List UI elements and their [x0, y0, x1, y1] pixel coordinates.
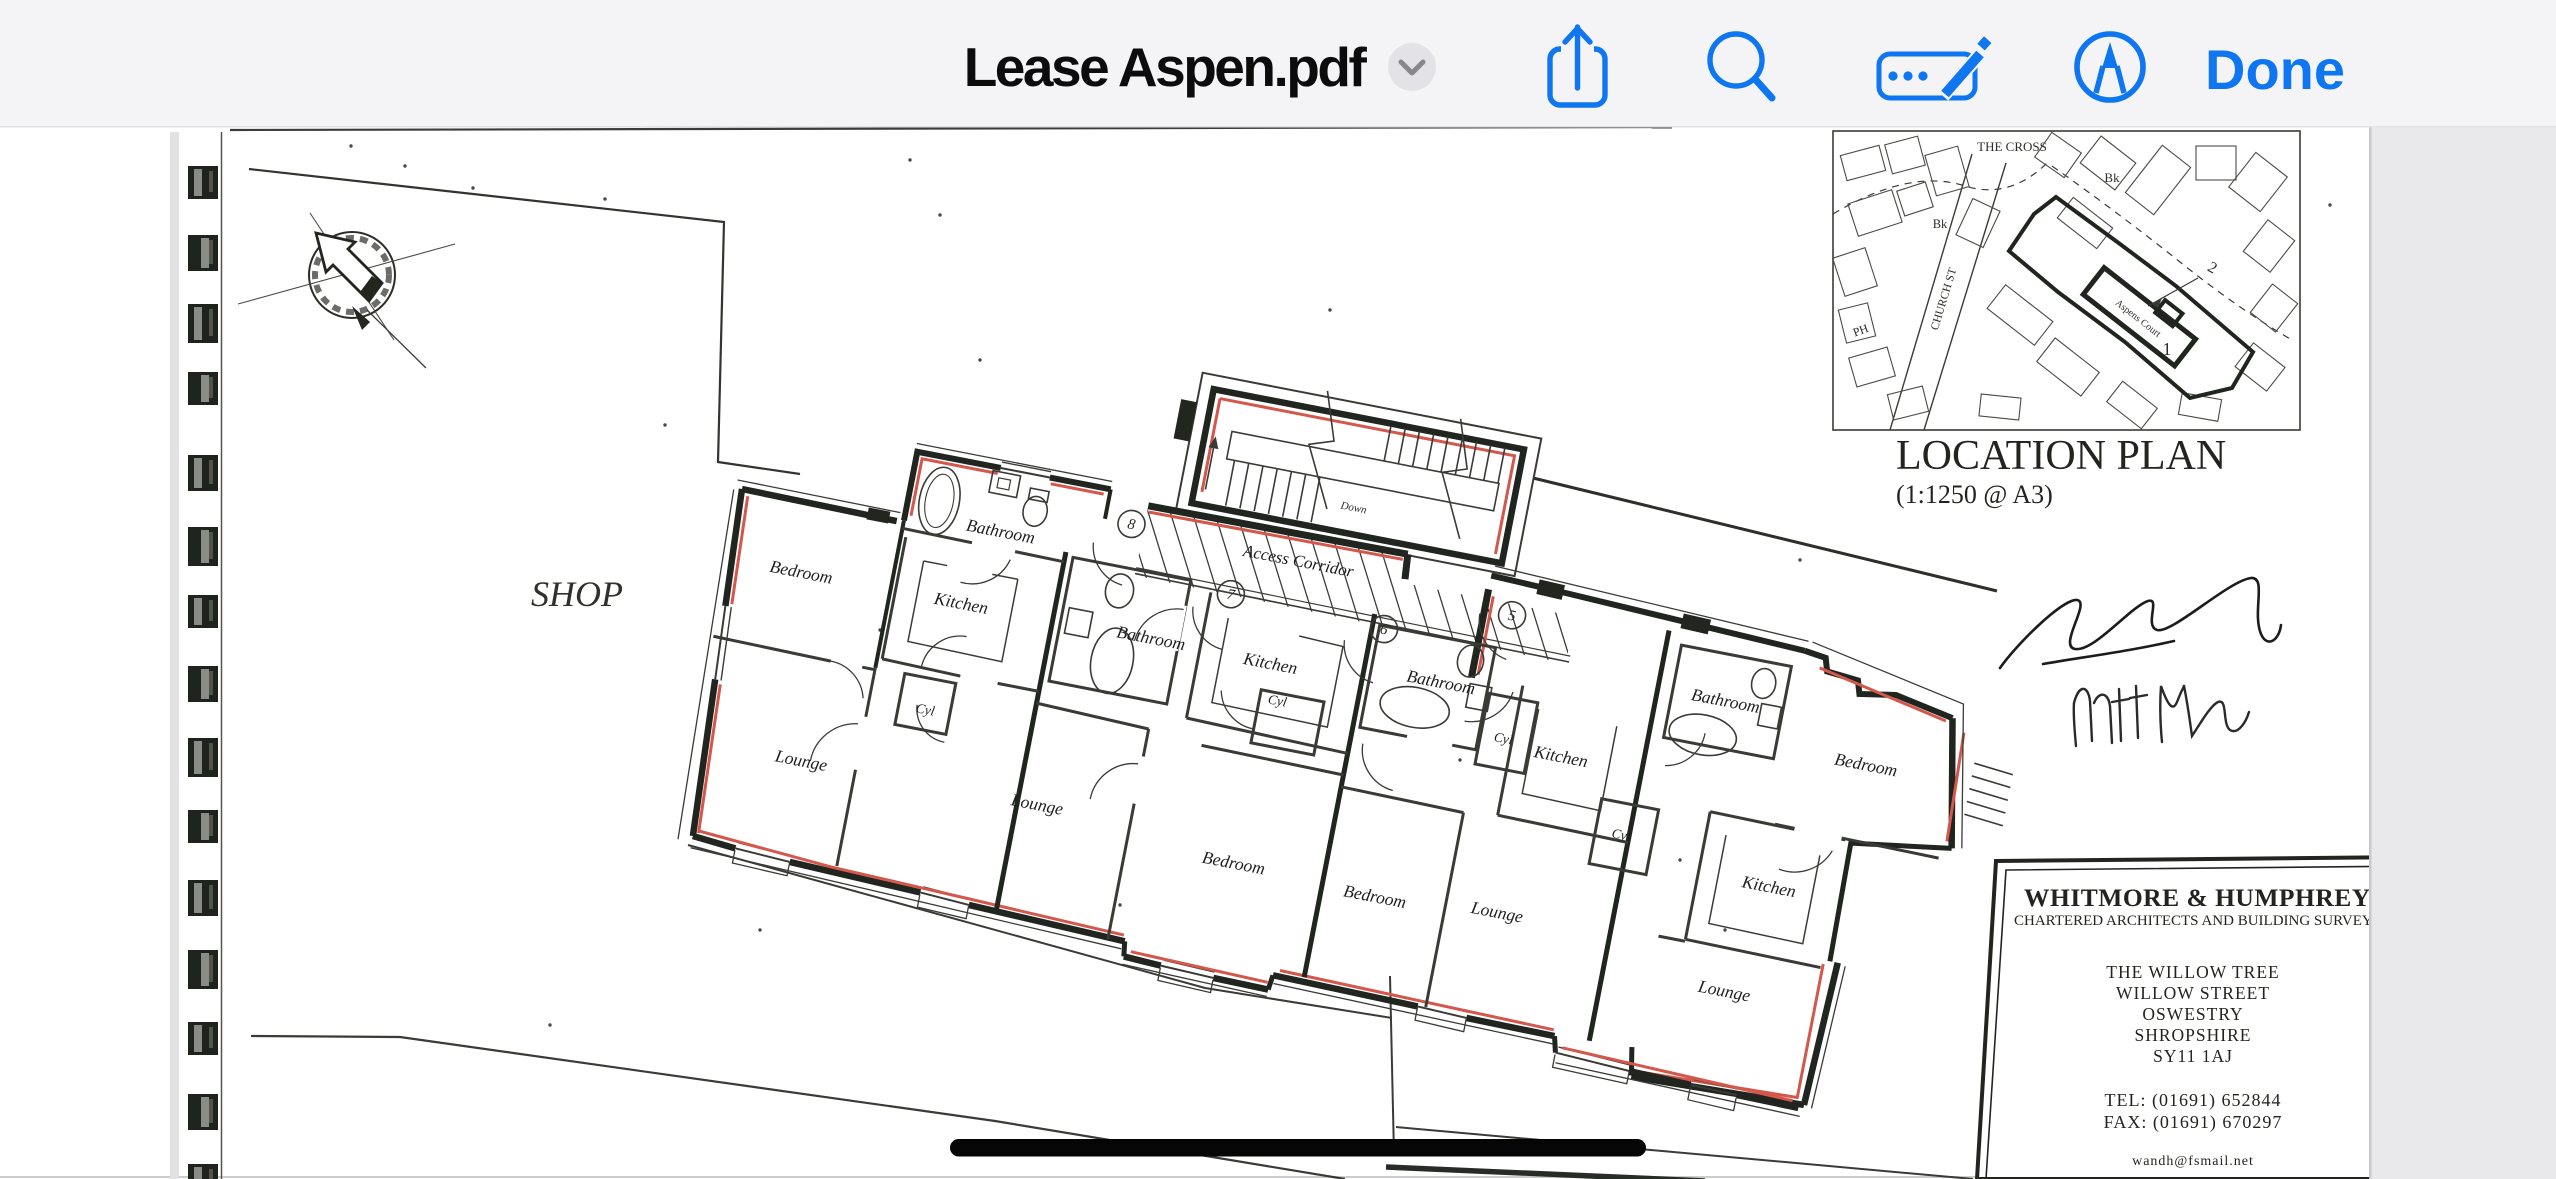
svg-text:FAX: (01691) 670297: FAX: (01691) 670297: [2104, 1112, 2283, 1133]
svg-text:Bk: Bk: [1933, 217, 1948, 231]
svg-text:(1:1250 @ A3): (1:1250 @ A3): [1896, 480, 2053, 509]
svg-text:WHITMORE & HUMPHREYS: WHITMORE & HUMPHREYS: [2024, 883, 2385, 912]
svg-text:SY11 1AJ: SY11 1AJ: [2153, 1046, 2233, 1066]
svg-text:TEL: (01691) 652844: TEL: (01691) 652844: [2105, 1090, 2282, 1111]
svg-text:Done: Done: [2205, 38, 2345, 101]
svg-text:THE CROSS: THE CROSS: [1977, 139, 2047, 154]
svg-text:WILLOW STREET: WILLOW STREET: [2116, 983, 2270, 1003]
svg-text:SHROPSHIRE: SHROPSHIRE: [2135, 1025, 2252, 1045]
svg-text:1: 1: [2163, 339, 2172, 359]
svg-text:Lease Aspen.pdf: Lease Aspen.pdf: [964, 36, 1368, 98]
svg-text:CHARTERED ARCHITECTS AND BUILD: CHARTERED ARCHITECTS AND BUILDING SURVEY…: [2014, 913, 2402, 929]
svg-text:THE WILLOW TREE: THE WILLOW TREE: [2106, 962, 2279, 982]
svg-text:SHOP: SHOP: [531, 574, 623, 614]
svg-text:OSWESTRY: OSWESTRY: [2142, 1004, 2243, 1024]
svg-text:Bk: Bk: [2104, 170, 2120, 185]
svg-text:wandh@fsmail.net: wandh@fsmail.net: [2132, 1154, 2254, 1169]
svg-text:LOCATION PLAN: LOCATION PLAN: [1896, 433, 2226, 479]
